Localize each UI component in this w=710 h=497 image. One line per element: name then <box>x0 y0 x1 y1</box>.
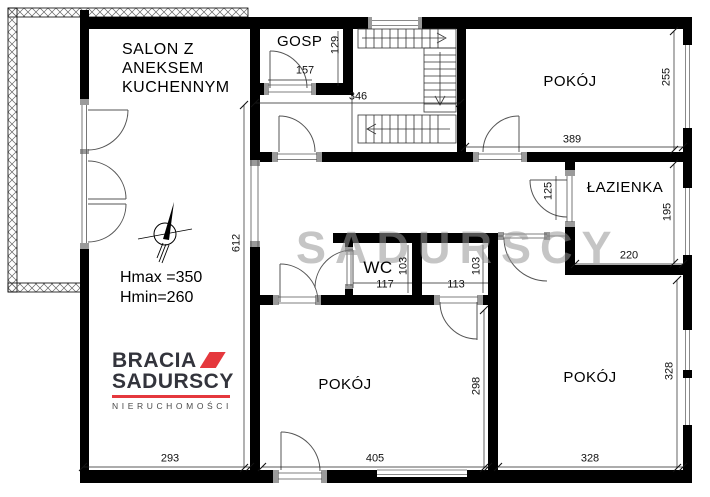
dim-125: 125 <box>543 182 556 200</box>
dim-117: 117 <box>376 279 394 292</box>
dim-103-closet: 103 <box>471 257 484 275</box>
dim-405: 405 <box>366 453 384 466</box>
room-label-pokoj-mid: POKÓJ <box>318 376 371 394</box>
dim-298: 298 <box>471 377 484 395</box>
room-label-wc: WC <box>363 258 392 278</box>
room-label-pokoj-top: POKÓJ <box>543 73 596 91</box>
dim-129: 129 <box>330 36 343 54</box>
dim-346: 346 <box>349 91 367 104</box>
dim-255: 255 <box>661 68 674 86</box>
dim-113: 113 <box>447 279 465 292</box>
dim-389: 389 <box>563 134 581 147</box>
brand-logo: BRACIA SADURSCY NIERUCHOMOŚCI <box>112 350 252 411</box>
brand-name-line1: BRACIA <box>112 350 197 371</box>
room-label-pokoj-right: POKÓJ <box>563 369 616 387</box>
room-label-pom-gosp: POM.GOSP <box>277 15 322 50</box>
dim-293: 293 <box>161 453 179 466</box>
room-label-salon: SALON ZANEKSEMKUCHENNYM <box>122 41 230 98</box>
brand-flag-icon <box>200 352 226 368</box>
dim-612: 612 <box>231 234 244 252</box>
staircase <box>352 29 456 152</box>
dim-220: 220 <box>620 250 638 263</box>
dim-157: 157 <box>296 65 314 78</box>
brand-tagline: NIERUCHOMOŚCI <box>112 401 252 411</box>
dim-103-wc: 103 <box>398 257 411 275</box>
floor-plan-page: SADURSCY SALON ZANEKSEMKUCHENNYM POM.GOS… <box>0 0 710 497</box>
watermark-text: SADURSCY <box>296 222 621 274</box>
height-note-hmin: Hmin=260 <box>120 288 193 309</box>
room-label-lazienka: ŁAZIENKA <box>587 179 664 197</box>
dim-195: 195 <box>662 203 675 221</box>
brand-name-line2: SADURSCY <box>112 371 252 392</box>
north-arrow-icon <box>138 202 192 263</box>
dim-328-right: 328 <box>664 362 677 380</box>
dim-328-bottom: 328 <box>581 453 599 466</box>
brand-underline <box>112 395 230 398</box>
height-note-hmax: Hmax =350 <box>120 268 202 289</box>
